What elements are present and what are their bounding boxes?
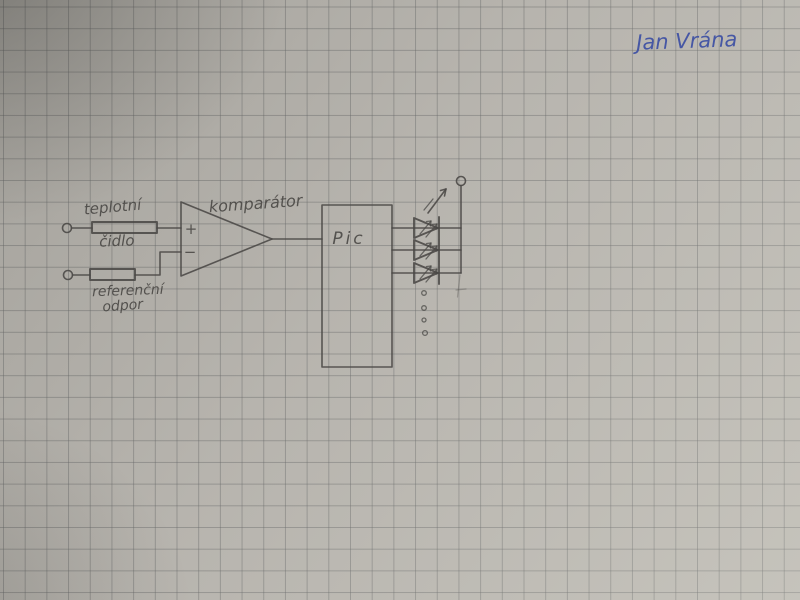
- comparator-minus-input: −: [184, 243, 197, 261]
- continuation-dot-2: [422, 306, 427, 311]
- label-sensor-line2: čidlo: [99, 231, 135, 250]
- supply-rail-faint-tick: [456, 289, 466, 290]
- signature: Jan Vrána: [632, 27, 738, 55]
- continuation-dot-4: [423, 331, 428, 336]
- label-mcu: Pic: [332, 229, 365, 249]
- label-reference-line2: odpor: [102, 297, 145, 316]
- label-sensor-line1: teplotní: [83, 195, 144, 218]
- label-comparator: komparátor: [208, 191, 304, 217]
- input-terminal-bottom: [64, 271, 73, 280]
- schematic-drawing: + −: [0, 0, 800, 600]
- input-terminal-top: [63, 224, 72, 233]
- graph-paper-background: + −: [0, 0, 800, 600]
- output-terminal: [457, 177, 466, 186]
- supply-rail-faint-continuation: [458, 275, 461, 297]
- continuation-dot-3: [422, 318, 426, 322]
- resistor-reference: [90, 269, 135, 280]
- continuation-dot-1: [422, 291, 427, 296]
- comparator-plus-input: +: [185, 220, 198, 238]
- wire-reference-to-comparator: [135, 252, 181, 275]
